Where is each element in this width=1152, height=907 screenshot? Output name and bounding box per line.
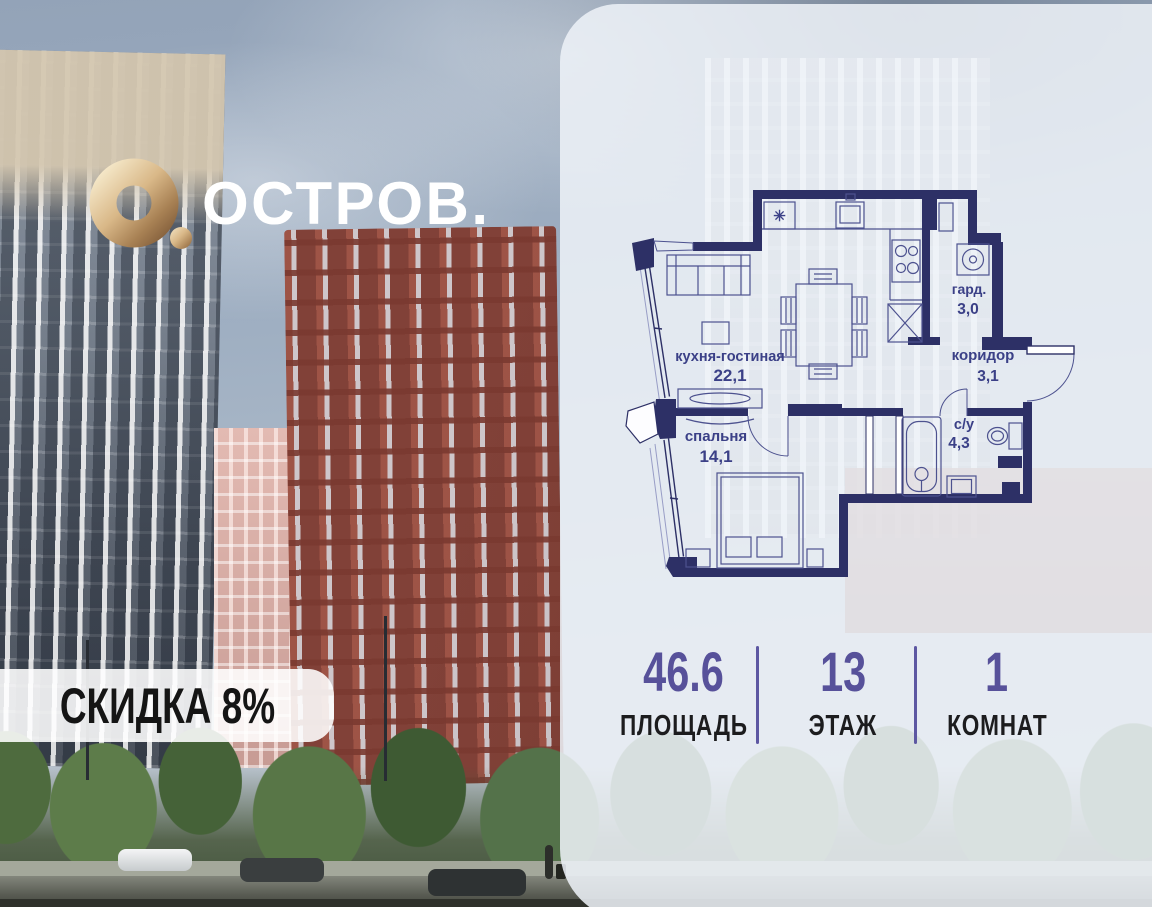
stat-area: 46.6 ПЛОЩАДЬ (602, 644, 766, 743)
discount-badge-label: СКИДКА 8% (59, 681, 274, 731)
room-area-bedroom: 14,1 (699, 447, 732, 466)
stat-floor-label: ЭТАЖ (809, 710, 877, 743)
kitchen-vent-icon: ✳ (773, 208, 786, 225)
room-area-wardrobe: 3,0 (957, 301, 979, 318)
bay-connector-outline (654, 241, 693, 251)
car-dark (240, 858, 324, 882)
pedestrian (545, 845, 553, 879)
stat-floor: 13 ЭТАЖ (766, 644, 920, 743)
stat-area-label: ПЛОЩАДЬ (620, 710, 748, 743)
discount-badge: СКИДКА 8% (0, 669, 334, 742)
logo-wordmark: ОСТРОВ. (202, 174, 491, 234)
street-light-pole-2 (384, 616, 387, 781)
apartment-stats: 46.6 ПЛОЩАДЬ 13 ЭТАЖ 1 КОМНАТ (602, 644, 1074, 743)
room-area-corridor: 3,1 (977, 368, 999, 385)
room-area-bathroom: 4,3 (948, 435, 970, 452)
bay-pier-outline (626, 402, 658, 443)
room-label-kitchen: кухня-гостиная (675, 349, 785, 365)
stats-divider (914, 646, 917, 744)
entrance-door-leaf (1027, 346, 1074, 354)
interior-thin-walls (866, 416, 903, 494)
car-white (118, 849, 192, 871)
car-dark-2 (428, 869, 526, 896)
logo-ring-icon (88, 157, 204, 263)
room-area-kitchen: 22,1 (713, 366, 746, 385)
room-label-bedroom: спальня (685, 428, 747, 445)
walls (632, 190, 1032, 577)
stat-rooms-value: 1 (985, 644, 1008, 700)
ad-canvas: ОСТРОВ. СКИДКА 8% (0, 0, 1152, 907)
stat-rooms-label: КОМНАТ (947, 710, 1047, 743)
stat-rooms: 1 КОМНАТ (920, 644, 1074, 743)
room-label-wardrobe: гард. (952, 281, 987, 297)
stats-divider (756, 646, 759, 744)
stat-floor-value: 13 (820, 644, 866, 700)
room-label-bathroom: с/у (954, 417, 974, 433)
stat-area-value: 46.6 (644, 644, 725, 700)
room-label-corridor: коридор (952, 347, 1015, 364)
floor-plan: ✳ кухня-гостиная 22,1 спальня 14,1 гард.… (620, 180, 1090, 600)
